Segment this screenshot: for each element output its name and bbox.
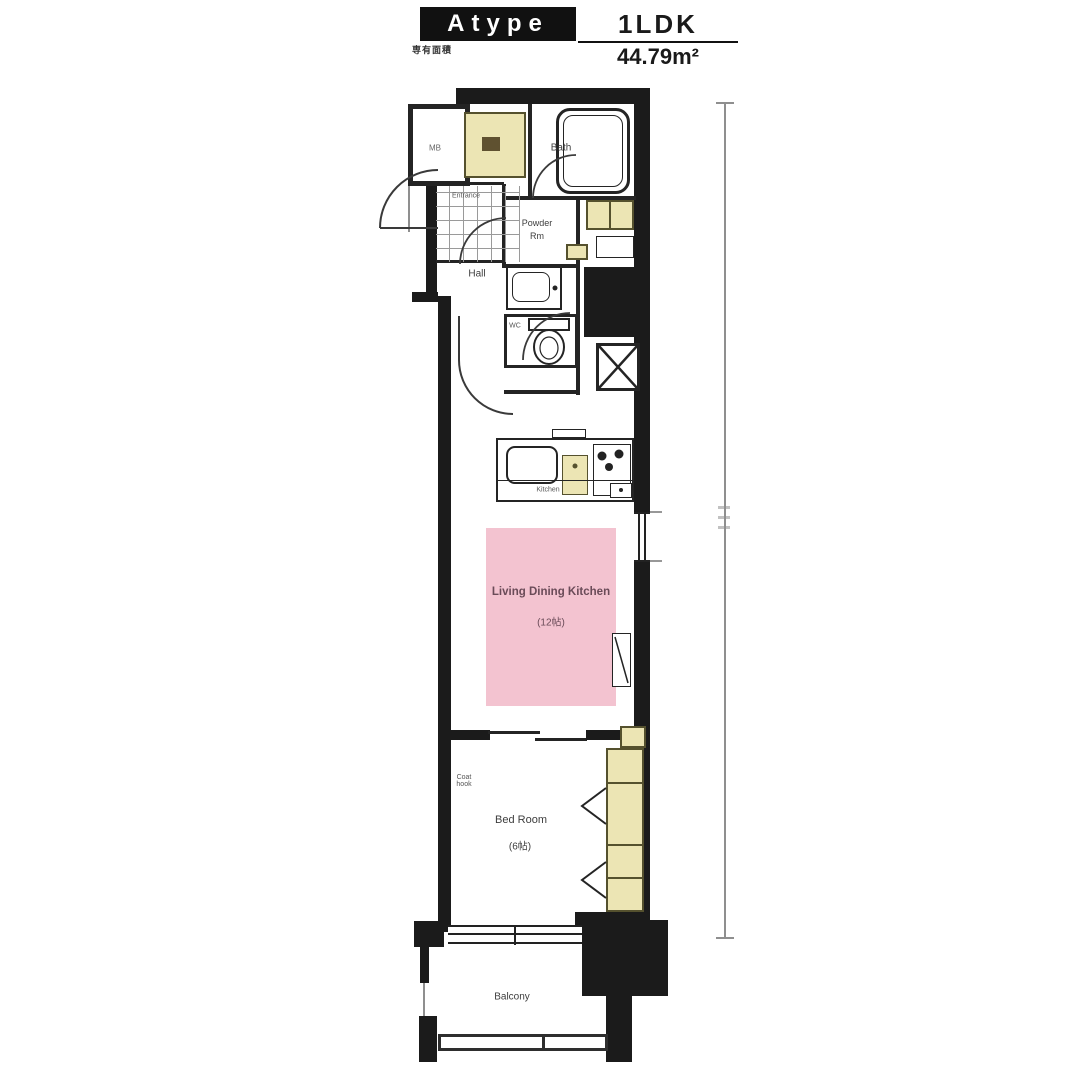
- coat-hook-line1: Coat: [450, 774, 478, 781]
- area-note-label: 専有面積: [412, 43, 452, 56]
- balcony-left-line: [423, 983, 425, 1016]
- dimension-text-smudge1: [718, 506, 730, 509]
- ldk-window: [634, 512, 650, 562]
- balcony-sliding-window: [448, 925, 582, 945]
- dimension-tick-bottom: [716, 937, 734, 939]
- toilet-tank: [528, 318, 570, 331]
- wall-bath-left: [528, 104, 532, 200]
- wall-left-main: [438, 296, 451, 932]
- dimension-text-smudge2: [718, 516, 730, 519]
- powder-label-2: Rm: [530, 231, 544, 241]
- balcony-label: Balcony: [494, 992, 530, 1003]
- ldk-label-2: (12帖): [537, 614, 565, 629]
- wall-bedroom-top-right: [586, 730, 622, 740]
- closet-upper-box: [620, 726, 646, 748]
- pillar-balcony-left: [414, 921, 444, 947]
- range-hood-mark: [552, 429, 586, 438]
- powder-label-1: Powder: [522, 218, 553, 228]
- porch-line: [408, 186, 410, 232]
- bedroom-label-1: Bed Room: [495, 814, 547, 826]
- washer-mark: [482, 137, 500, 151]
- pillar-right-mid: [584, 267, 650, 337]
- wall-bedroom-top-left: [450, 730, 490, 740]
- wall-left-tick: [412, 292, 438, 302]
- entrance-label: Entrance: [452, 193, 480, 200]
- floor-area-label: 44.79m²: [578, 44, 738, 70]
- vanity-counter: [586, 200, 634, 230]
- wall-top: [456, 88, 650, 104]
- closet-shelves: [606, 748, 644, 912]
- pillar-balcony-right: [582, 920, 668, 996]
- bedroom-label-2: (6帖): [509, 838, 531, 853]
- hall-label: Hall: [468, 269, 485, 280]
- kitchen-label: Kitchen: [536, 487, 559, 494]
- bath-label: Bath: [551, 143, 572, 154]
- vanity-cabinet: [596, 236, 634, 258]
- dimension-line: [724, 103, 726, 939]
- bedroom-slider-line2: [535, 738, 587, 741]
- coat-hook-line2: hook: [450, 781, 478, 788]
- dimension-tick-top: [716, 102, 734, 104]
- ldk-label-1: Living Dining Kitchen: [492, 586, 610, 598]
- laundry-shelf: [566, 244, 588, 260]
- washbasin-bowl: [512, 272, 550, 302]
- floorplan-page: Atype 1LDK 44.79m² 専有面積 MB Bath Entrance…: [0, 0, 1080, 1074]
- pillar-balcony-right-low: [606, 996, 632, 1062]
- pipe-space-box: [596, 343, 640, 391]
- coat-hook-note: Coat hook: [450, 774, 478, 788]
- pillar-balcony-left-low: [419, 1016, 437, 1062]
- kitchen-side-box: [610, 483, 632, 498]
- wall-balcony-left-thin: [420, 947, 429, 983]
- bedroom-slider-line1: [488, 731, 540, 734]
- bathtub-inner: [563, 115, 623, 187]
- wall-corridor-bottom: [504, 390, 580, 394]
- dimension-text-smudge3: [718, 526, 730, 529]
- wall-right-upper: [634, 100, 650, 270]
- kitchen-sink: [506, 446, 558, 484]
- balcony-railing: [438, 1034, 608, 1051]
- wc-label: WC: [509, 323, 521, 330]
- layout-type-label: 1LDK: [578, 7, 738, 43]
- meter-box-label: MB: [429, 144, 441, 153]
- unit-type-badge: Atype: [420, 7, 576, 41]
- tv-board: [612, 633, 631, 687]
